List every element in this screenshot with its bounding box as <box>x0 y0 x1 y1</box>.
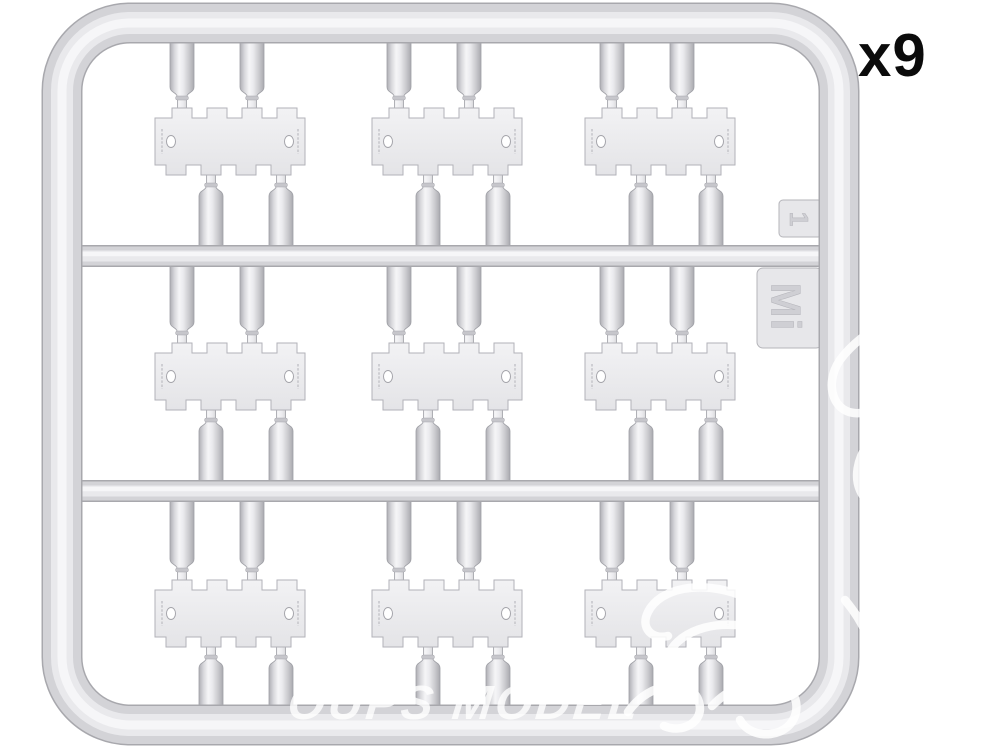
plate-hole <box>597 136 606 148</box>
cylinder-collar <box>635 183 648 187</box>
cylinder-collar <box>205 183 218 187</box>
plate-hole <box>715 371 724 383</box>
cylinder-collar <box>705 655 718 659</box>
flourish-curve <box>867 534 955 640</box>
cylinder-collar <box>246 331 259 335</box>
cylinder-collar <box>176 96 189 100</box>
sprue-product-image: 1 Mi x9 OUPS MODEL <box>0 0 1000 750</box>
cylinder-collar <box>422 418 435 422</box>
cylinder-collar <box>205 418 218 422</box>
cylinder-collar <box>463 96 476 100</box>
cylinder-collar <box>275 418 288 422</box>
plate-part <box>372 580 522 647</box>
flourish-curve <box>857 368 1000 507</box>
cylinder-collar <box>246 568 259 572</box>
cylinder-collar <box>606 96 619 100</box>
plate-hole <box>384 371 393 383</box>
cylinder-collar <box>705 418 718 422</box>
plate-part <box>155 108 305 175</box>
cylinder-collar <box>422 183 435 187</box>
brand-mark-text: Mi <box>763 283 810 332</box>
watermark-text: OUPS MODEL <box>285 680 643 728</box>
plate-hole <box>715 136 724 148</box>
cylinder-collar <box>606 568 619 572</box>
plate-part <box>372 108 522 175</box>
cylinder-collar <box>492 418 505 422</box>
brand-mark-tag: Mi <box>757 268 822 348</box>
part-cluster <box>372 264 522 483</box>
plate-hole <box>167 608 176 620</box>
cylinder-collar <box>393 96 406 100</box>
cylinder-collar <box>176 568 189 572</box>
cylinder-collar <box>463 331 476 335</box>
flourish-curve <box>902 659 996 690</box>
runner-rail-2 <box>74 489 827 491</box>
cylinder-collar <box>676 96 689 100</box>
part-cluster <box>585 40 735 248</box>
plate-hole <box>285 136 294 148</box>
plate-part <box>372 343 522 410</box>
cylinder-collar <box>676 331 689 335</box>
plate-hole <box>597 371 606 383</box>
plate-part <box>585 108 735 175</box>
gate-number-tag: 1 <box>779 200 822 237</box>
cylinder-collar <box>463 568 476 572</box>
sprue-drawing: 1 Mi <box>0 0 1000 750</box>
cylinder-collar <box>246 96 259 100</box>
plate-hole <box>715 608 724 620</box>
part-cluster <box>155 264 305 483</box>
cylinder-collar <box>676 568 689 572</box>
gate-number-text: 1 <box>784 212 814 226</box>
part-cluster <box>155 499 305 709</box>
cylinder-collar <box>422 655 435 659</box>
plate-hole <box>285 608 294 620</box>
plate-hole <box>502 136 511 148</box>
part-cluster <box>155 40 305 248</box>
flourish-curve <box>925 707 1000 738</box>
cylinder-collar <box>606 331 619 335</box>
cylinder-collar <box>393 568 406 572</box>
cylinder-collar <box>205 655 218 659</box>
plate-hole <box>384 136 393 148</box>
plate-hole <box>167 371 176 383</box>
quantity-label: x9 <box>858 26 927 86</box>
plate-part <box>155 580 305 647</box>
cylinder-collar <box>393 331 406 335</box>
cylinder-collar <box>492 655 505 659</box>
cylinder-collar <box>635 418 648 422</box>
cylinder-collar <box>176 331 189 335</box>
plate-hole <box>597 608 606 620</box>
cylinder-collar <box>492 183 505 187</box>
plate-part <box>155 343 305 410</box>
part-cluster <box>585 264 735 483</box>
cylinder-collar <box>275 183 288 187</box>
cylinder-collar <box>705 183 718 187</box>
plate-hole <box>502 608 511 620</box>
plate-hole <box>285 371 294 383</box>
plate-hole <box>167 136 176 148</box>
plate-part <box>585 343 735 410</box>
cylinder-collar <box>275 655 288 659</box>
plate-hole <box>502 371 511 383</box>
plate-hole <box>384 608 393 620</box>
part-cluster <box>372 40 522 248</box>
cylinder-collar <box>635 655 648 659</box>
runner-rail-1 <box>74 254 827 256</box>
